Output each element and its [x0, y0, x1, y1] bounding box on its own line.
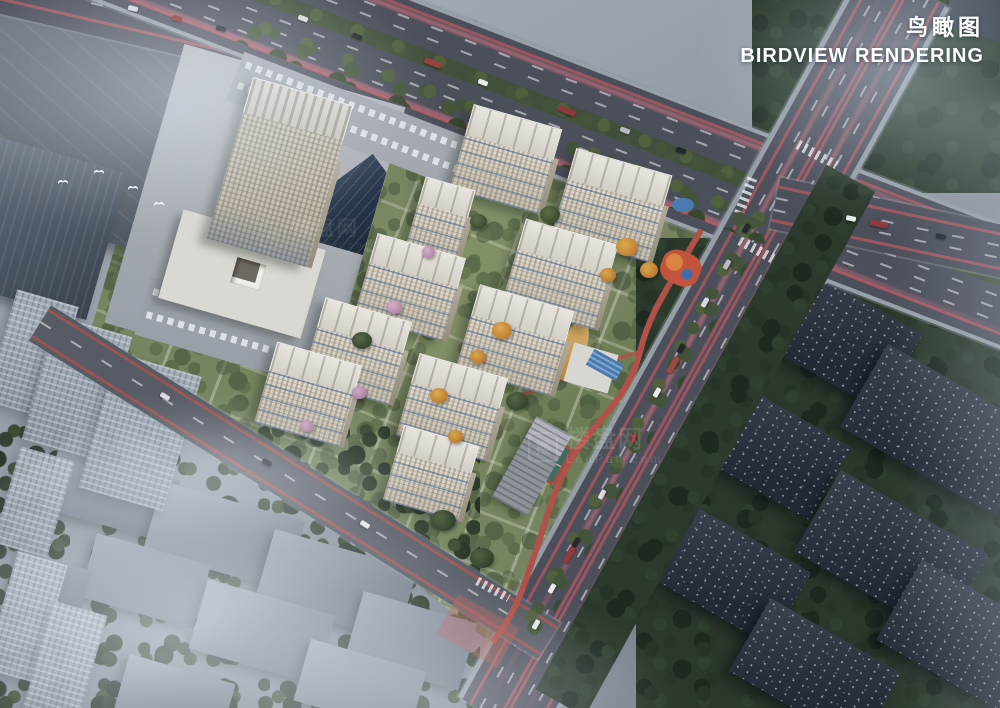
blossom-tree: [386, 300, 402, 314]
autumn-tree: [430, 388, 448, 403]
blossom-tree: [352, 386, 367, 399]
birdview-rendering: 楼 楼盘网 LouPan.com 楼 楼盘网 LouPan.com 鸟瞰图 BI…: [0, 0, 1000, 708]
bird-icon: [154, 200, 164, 206]
podium-skylight: [230, 257, 266, 290]
green-tree: [430, 510, 456, 531]
autumn-tree: [600, 268, 616, 282]
autumn-tree: [616, 238, 638, 256]
green-tree: [506, 392, 528, 410]
pool-feature: [672, 198, 694, 212]
blossom-tree: [422, 246, 435, 258]
bird-icon: [58, 178, 68, 184]
autumn-tree: [470, 350, 486, 364]
green-tree: [540, 206, 560, 223]
title-chinese: 鸟瞰图: [740, 10, 984, 42]
title-english: BIRDVIEW RENDERING: [740, 45, 984, 68]
autumn-tree: [448, 430, 463, 443]
autumn-tree: [640, 262, 658, 278]
page-title: 鸟瞰图 BIRDVIEW RENDERING: [740, 10, 984, 68]
green-tree: [352, 332, 372, 349]
autumn-tree: [492, 322, 512, 339]
blossom-tree: [300, 420, 314, 432]
bird-icon: [94, 168, 104, 174]
green-tree: [470, 548, 494, 568]
bird-icon: [128, 184, 138, 190]
green-tree: [470, 214, 487, 229]
